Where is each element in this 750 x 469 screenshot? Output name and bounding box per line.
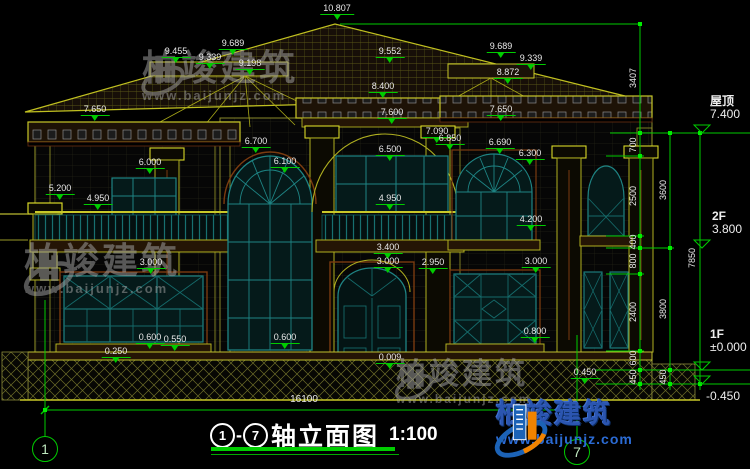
watermark: 柏竣建筑 www.baijunjz.com (20, 243, 180, 296)
center-arch-window (224, 152, 316, 350)
elevation-label: 6.000 (136, 157, 165, 169)
elevation-label: 8.400 (369, 81, 398, 93)
elevation-label: 9.689 (487, 41, 516, 53)
elevation-label: 0.009 (376, 352, 405, 364)
elevation-label: 3.000 (522, 256, 551, 268)
title-axis-end: 7 (243, 423, 268, 448)
elevation-label: 4.950 (84, 193, 113, 205)
level-marker: 1F±0.000 (710, 328, 747, 354)
chain-dimension: 400 (628, 234, 638, 249)
elevation-label: 0.550 (161, 334, 190, 346)
chain-dimension: 450 (658, 369, 668, 384)
chain-dimension: 2400 (628, 302, 638, 322)
elevation-label: 6.300 (516, 148, 545, 160)
chain-dimension: 7850 (687, 248, 697, 268)
elevation-label: 6.690 (486, 137, 515, 149)
elevation-label: 10.807 (320, 3, 354, 15)
title-underline-thin (211, 454, 399, 455)
chain-dimension: 450 (628, 369, 638, 384)
elevation-label: 9.339 (196, 52, 225, 64)
elevation-label: 0.600 (271, 332, 300, 344)
elevation-label: 9.552 (376, 46, 405, 58)
drawing-scale: 1:100 (389, 424, 438, 446)
chain-dimension: 600 (628, 350, 638, 365)
level-marker: -0.450 (706, 390, 740, 403)
title-axis-start: 1 (210, 423, 235, 448)
chain-dimension: 700 (628, 137, 638, 152)
elevation-label: 8.872 (494, 67, 523, 79)
watermark-icon (392, 360, 436, 404)
elevation-label: 6.850 (436, 133, 465, 145)
chain-dimension: 800 (628, 253, 638, 268)
elevation-label: 9.198 (236, 58, 265, 70)
chain-dimension: 3800 (658, 299, 668, 319)
chain-dimension: 2500 (628, 186, 638, 206)
title-axis-separator: - (236, 425, 242, 446)
level-marker: 屋顶7.400 (710, 95, 740, 121)
chain-dimension: 3407 (628, 68, 638, 88)
elevation-label: 0.450 (571, 367, 600, 379)
elevation-label: 6.100 (271, 156, 300, 168)
elevation-label: 4.200 (517, 214, 546, 226)
elevation-label: 7.650 (81, 104, 110, 116)
brand-logo-icon (492, 400, 554, 460)
elevation-label: 9.455 (162, 46, 191, 58)
elevation-label: 9.339 (517, 53, 546, 65)
brand-logo: 柏竣建筑 www.baijunjz.com (492, 400, 633, 447)
elevation-label: 4.950 (376, 193, 405, 205)
elevation-label: 3.400 (374, 242, 403, 254)
elevation-label: 7.600 (378, 107, 407, 119)
elevation-label: 0.250 (102, 346, 131, 358)
elevation-label: 6.700 (242, 136, 271, 148)
overall-dimension: 16100 (290, 394, 318, 405)
elevation-label: 7.650 (487, 104, 516, 116)
elevation-label: 2.950 (419, 257, 448, 269)
elevation-label: 0.800 (521, 326, 550, 338)
elevation-label: 6.500 (376, 144, 405, 156)
title-underline-thick (211, 447, 395, 451)
level-marker: 2F3.800 (712, 210, 742, 236)
elevation-label: 3.000 (137, 257, 166, 269)
elevation-label: 3.000 (374, 256, 403, 268)
chain-dimension: 3600 (658, 180, 668, 200)
elevation-label: 5.200 (46, 183, 75, 195)
watermark-icon (20, 243, 78, 301)
elevation-label: 9.689 (219, 38, 248, 50)
axis-bubble: 1 (32, 436, 58, 462)
cad-elevation-sheet: 柏竣建筑 www.baijunjz.com 柏竣建筑 www.baijunjz.… (0, 0, 750, 469)
